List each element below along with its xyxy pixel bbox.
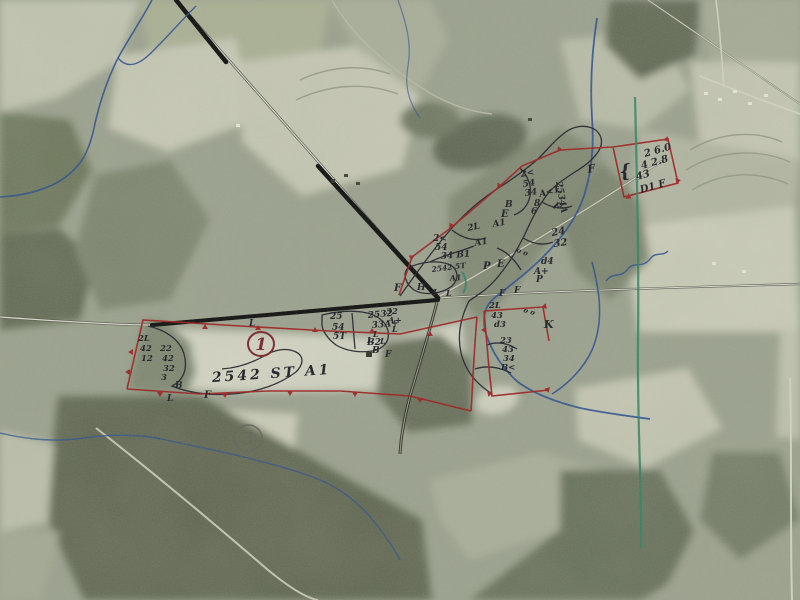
- photo-base: [0, 0, 800, 600]
- map-label: F: [498, 289, 506, 299]
- map-label: L: [432, 287, 439, 297]
- map-label: B: [174, 381, 183, 391]
- map-label: 6: [531, 207, 538, 217]
- map-label: L: [445, 288, 452, 298]
- map-label: d4: [541, 257, 554, 267]
- map-label: d3: [494, 320, 506, 330]
- map-label: A1: [448, 272, 462, 283]
- map-label: H: [416, 283, 426, 293]
- parcel-number: 1: [255, 335, 267, 355]
- map-label: 2L: [137, 334, 150, 344]
- map-label: F: [384, 350, 392, 360]
- map-label: 2L: [488, 301, 501, 311]
- map-label: K: [543, 318, 554, 331]
- map-label: P: [535, 275, 543, 285]
- map-canvas: 2 6.04 2.843D1 F{F2534AF2<5434A<186BEA1o…: [0, 0, 800, 600]
- parcel-number: 3: [242, 429, 254, 449]
- map-label: P: [482, 261, 491, 272]
- map-label: B2: [366, 338, 381, 348]
- aerial-photo-map[interactable]: 2 6.04 2.843D1 F{F2534AF2<5434A<186BEA1o…: [0, 0, 800, 600]
- map-label: 34: [524, 187, 538, 199]
- map-label: 5T: [333, 332, 347, 342]
- map-label: 42: [162, 354, 174, 364]
- map-label: 25: [329, 312, 343, 322]
- photo-mottle: [0, 0, 800, 600]
- map-label: 12: [141, 354, 153, 364]
- map-label: L: [248, 319, 255, 329]
- map-label: 42: [140, 344, 152, 354]
- map-label: F: [513, 286, 521, 296]
- map-label: 22: [159, 344, 172, 354]
- map-label: B<: [500, 363, 515, 373]
- map-label: 3: [161, 373, 167, 383]
- map-label: F: [203, 390, 212, 401]
- map-label: 32: [553, 237, 568, 250]
- map-label: F: [393, 283, 402, 294]
- map-label: E: [496, 259, 505, 270]
- map-label: L: [166, 394, 173, 404]
